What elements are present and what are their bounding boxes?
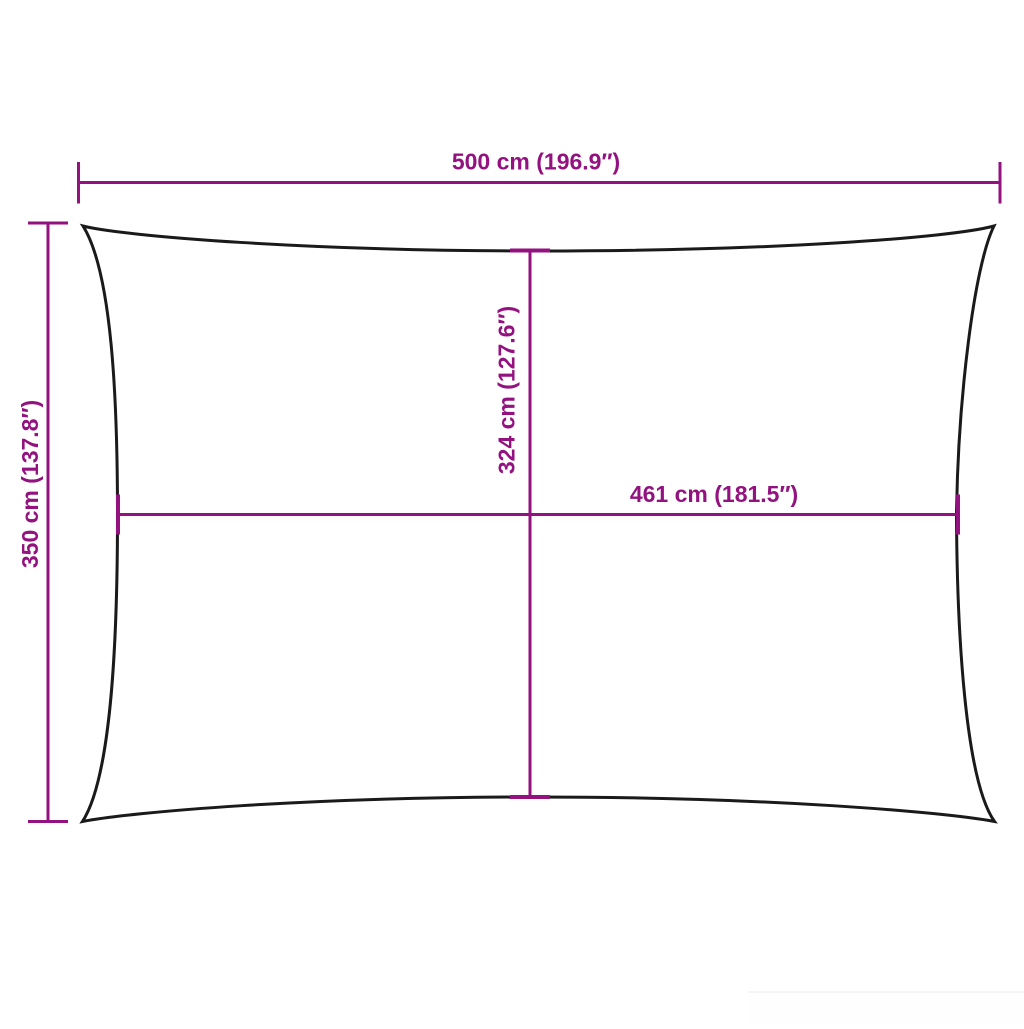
svg-text:350 cm (137.8″): 350 cm (137.8″) xyxy=(17,400,43,568)
svg-text:461 cm (181.5″): 461 cm (181.5″) xyxy=(630,481,798,507)
svg-text:324 cm (127.6″): 324 cm (127.6″) xyxy=(494,306,520,474)
svg-text:500 cm (196.9″): 500 cm (196.9″) xyxy=(452,149,620,175)
